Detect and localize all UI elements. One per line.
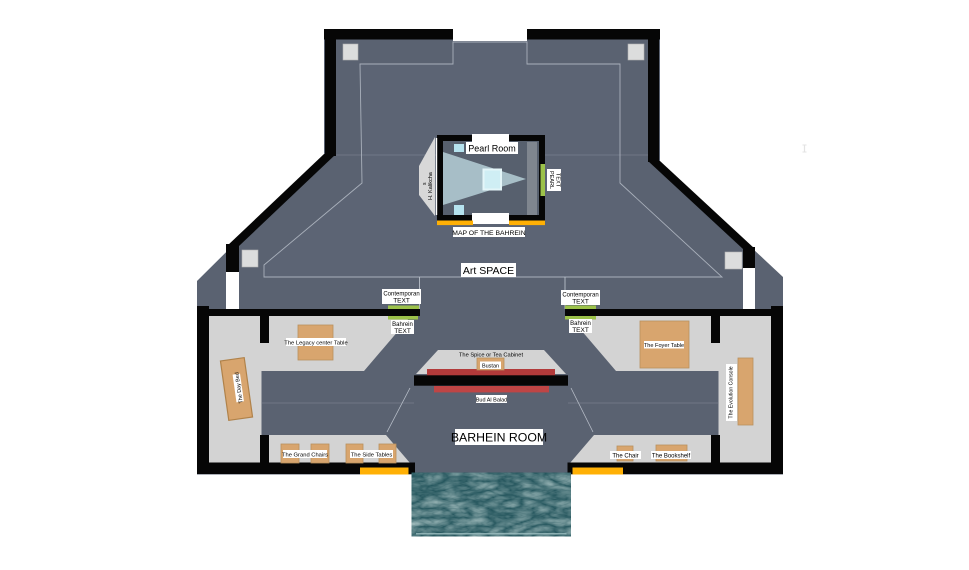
svg-text:BARHEIN ROOM: BARHEIN ROOM: [451, 431, 547, 445]
svg-text:TEXT: TEXT: [555, 173, 561, 188]
svg-text:H. Kalikcha: H. Kalikcha: [428, 171, 434, 200]
svg-text:The Spice or Tea Cabinet: The Spice or Tea Cabinet: [459, 353, 523, 359]
svg-text:The Chair: The Chair: [612, 454, 638, 460]
svg-text:TEXT: TEXT: [393, 298, 410, 305]
svg-text:TEXT: TEXT: [572, 327, 589, 334]
svg-text:Bustan: Bustan: [482, 364, 499, 370]
svg-text:Art SPACE: Art SPACE: [463, 265, 514, 277]
svg-text:TEXT: TEXT: [572, 299, 589, 306]
svg-text:The Bookshelf: The Bookshelf: [652, 454, 691, 460]
svg-text:MAP OF THE BAHREIN: MAP OF THE BAHREIN: [452, 230, 525, 237]
svg-text:Bud Al Balad: Bud Al Balad: [476, 397, 508, 403]
svg-text:The Foyer Table: The Foyer Table: [644, 343, 684, 349]
svg-text:Pearl Room: Pearl Room: [468, 144, 516, 154]
svg-text:TEXT: TEXT: [394, 328, 411, 335]
svg-text:PEARL: PEARL: [548, 171, 554, 189]
svg-text:The Grand Chairs: The Grand Chairs: [282, 452, 328, 458]
svg-text:The Evolution Console: The Evolution Console: [729, 366, 735, 418]
svg-text:The Side Tables: The Side Tables: [351, 452, 393, 458]
svg-text:The Legacy center Table: The Legacy center Table: [284, 341, 347, 347]
